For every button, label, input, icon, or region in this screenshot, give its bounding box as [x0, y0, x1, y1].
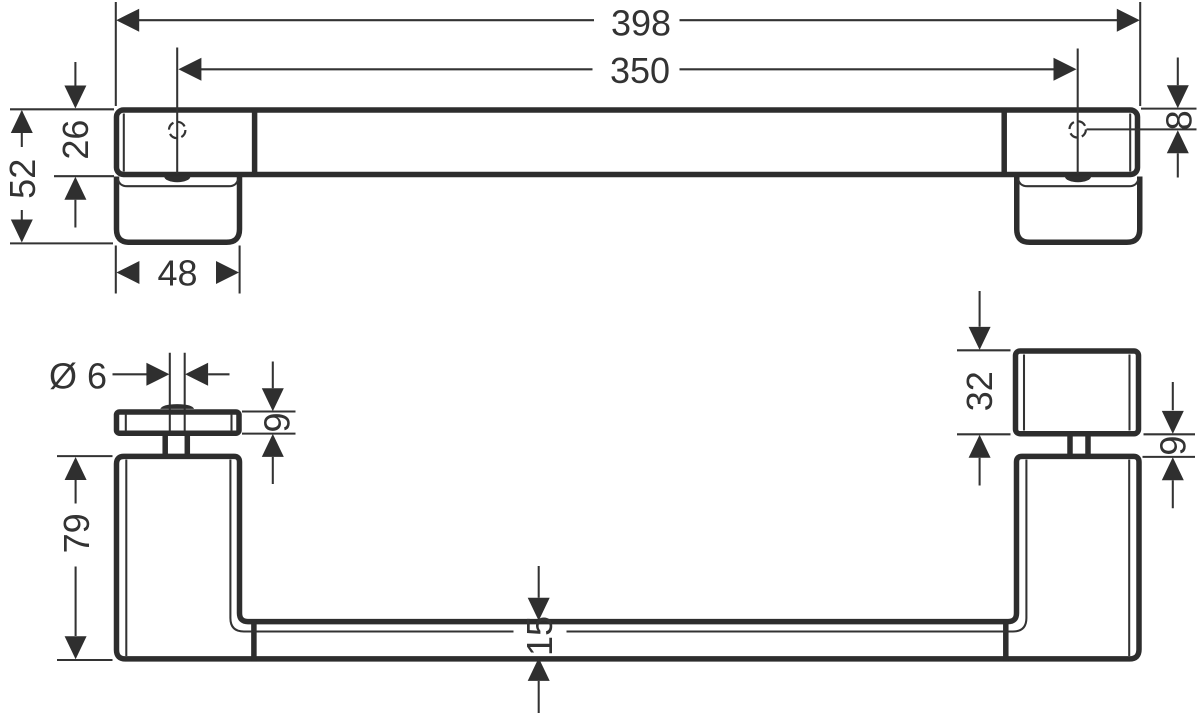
svg-text:52: 52	[2, 159, 43, 199]
svg-text:32: 32	[959, 371, 1000, 411]
svg-text:8: 8	[1159, 110, 1200, 130]
svg-text:15: 15	[519, 616, 560, 656]
svg-text:350: 350	[610, 50, 670, 91]
svg-text:26: 26	[55, 120, 96, 160]
svg-text:9: 9	[256, 412, 297, 432]
svg-text:9: 9	[1152, 436, 1193, 456]
svg-text:Ø 6: Ø 6	[49, 355, 107, 396]
svg-text:48: 48	[157, 253, 197, 294]
svg-text:79: 79	[56, 513, 97, 553]
svg-text:398: 398	[611, 3, 671, 44]
